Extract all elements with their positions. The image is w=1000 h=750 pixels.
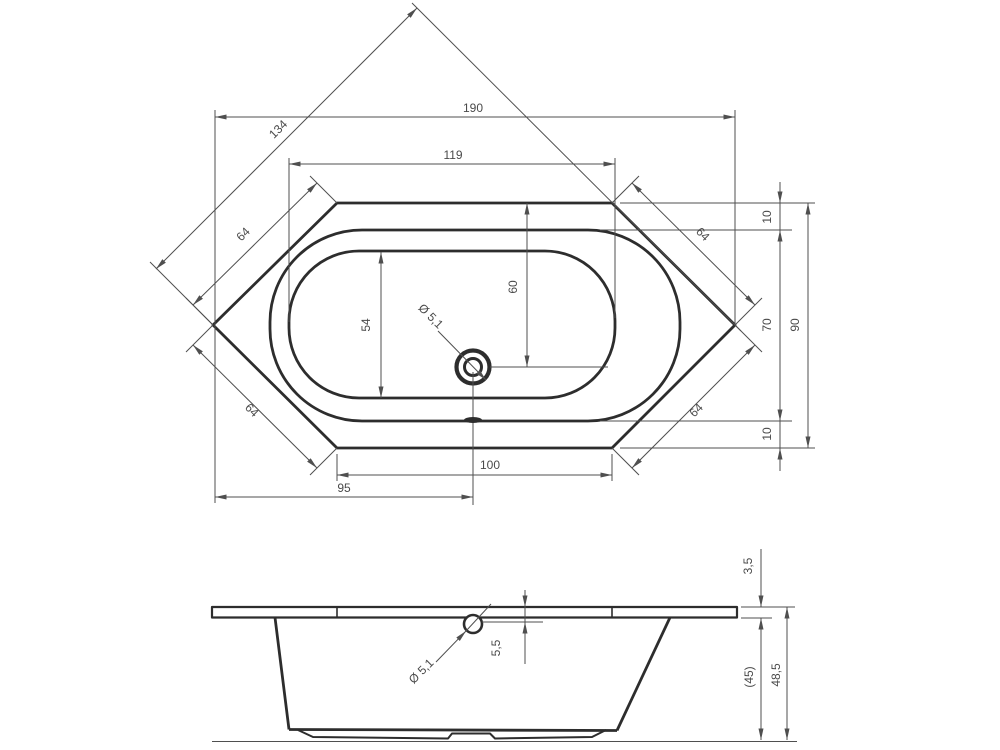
dim-95-label: 95 — [337, 481, 351, 495]
drain-diameter-side-label: Ø 5,1 — [406, 656, 437, 687]
dim-54-label: 54 — [359, 318, 373, 332]
bathtub-technical-drawing: 190 134 119 64 64 64 64 10 70 90 10 60 5… — [0, 0, 1000, 750]
dim-55-label: 5,5 — [489, 639, 503, 656]
dim-190-label: 190 — [463, 101, 483, 115]
side-left-wall — [275, 618, 289, 730]
ext-64tr-a — [612, 176, 639, 203]
dim-45-label: (45) — [742, 666, 756, 687]
drawing-sheet: 190 134 119 64 64 64 64 10 70 90 10 60 5… — [0, 0, 1000, 750]
ext-diag-apex — [412, 3, 741, 331]
side-view: 3,5 5,5 Ø 5,1 (45) 48,5 — [212, 549, 797, 742]
tub-outer-hexagon — [213, 203, 735, 448]
ext-64tl-a — [186, 298, 213, 325]
ext-64tr-b — [735, 298, 762, 325]
dim-35-label: 3,5 — [741, 557, 755, 574]
dim-100-label: 100 — [480, 458, 500, 472]
side-right-wall — [617, 618, 670, 731]
dim-119-label: 119 — [443, 148, 462, 162]
dim-485-label: 48,5 — [769, 663, 783, 687]
ext-64bl-b — [310, 448, 337, 475]
tub-basin-oval — [289, 251, 615, 398]
ext-64tl-b — [310, 176, 337, 203]
ext-64bl-a — [186, 325, 213, 352]
dim-64-top-left-label: 64 — [233, 224, 253, 244]
dim-10-top-label: 10 — [760, 210, 774, 224]
drain-diameter-top-label: Ø 5,1 — [415, 301, 446, 332]
ext-64br-b — [612, 448, 639, 475]
dim-60-label: 60 — [506, 280, 520, 294]
top-view: 190 134 119 64 64 64 64 10 70 90 10 60 5… — [150, 3, 815, 505]
ext-64br-a — [735, 325, 762, 352]
side-drain-leader-a — [436, 631, 466, 662]
dim-64-bottom-left-label: 64 — [242, 400, 262, 420]
dim-64-bottom-right-label: 64 — [686, 400, 706, 420]
dim-10-bottom-label: 10 — [760, 427, 774, 441]
dim-64-top-right-label: 64 — [693, 224, 713, 244]
overflow-mark — [464, 417, 482, 423]
side-base — [289, 730, 617, 731]
dim-64tr-line — [632, 183, 755, 305]
dim-90-label: 90 — [788, 318, 802, 332]
dim-70-label: 70 — [760, 318, 774, 332]
